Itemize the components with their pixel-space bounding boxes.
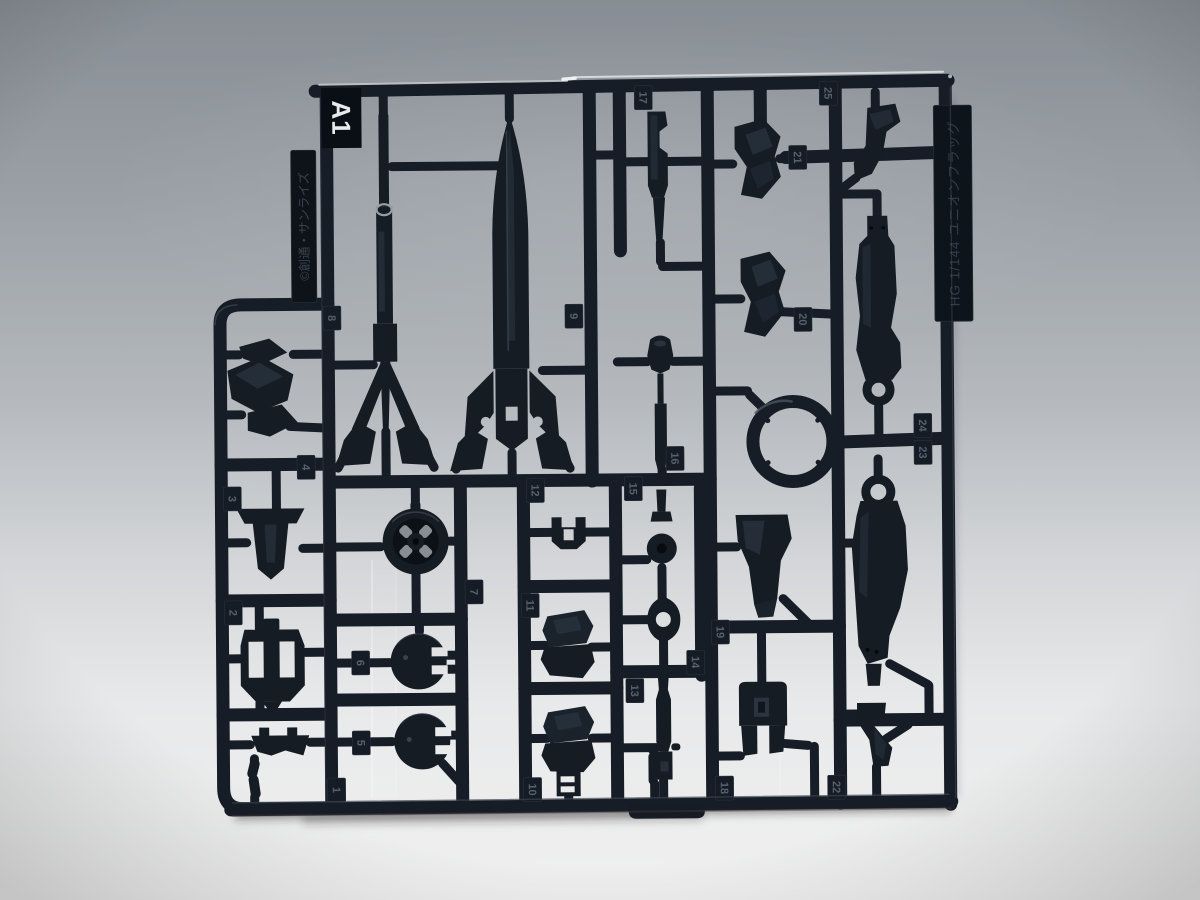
vignette-overlay [0,0,1200,900]
photo-model-kit-runner: A1 ©創通・サンライズ HG 1/144 ユニオンフラッグ 123456789… [0,0,1200,900]
runner-photo-canvas: A1 ©創通・サンライズ HG 1/144 ユニオンフラッグ 123456789… [0,0,1200,900]
